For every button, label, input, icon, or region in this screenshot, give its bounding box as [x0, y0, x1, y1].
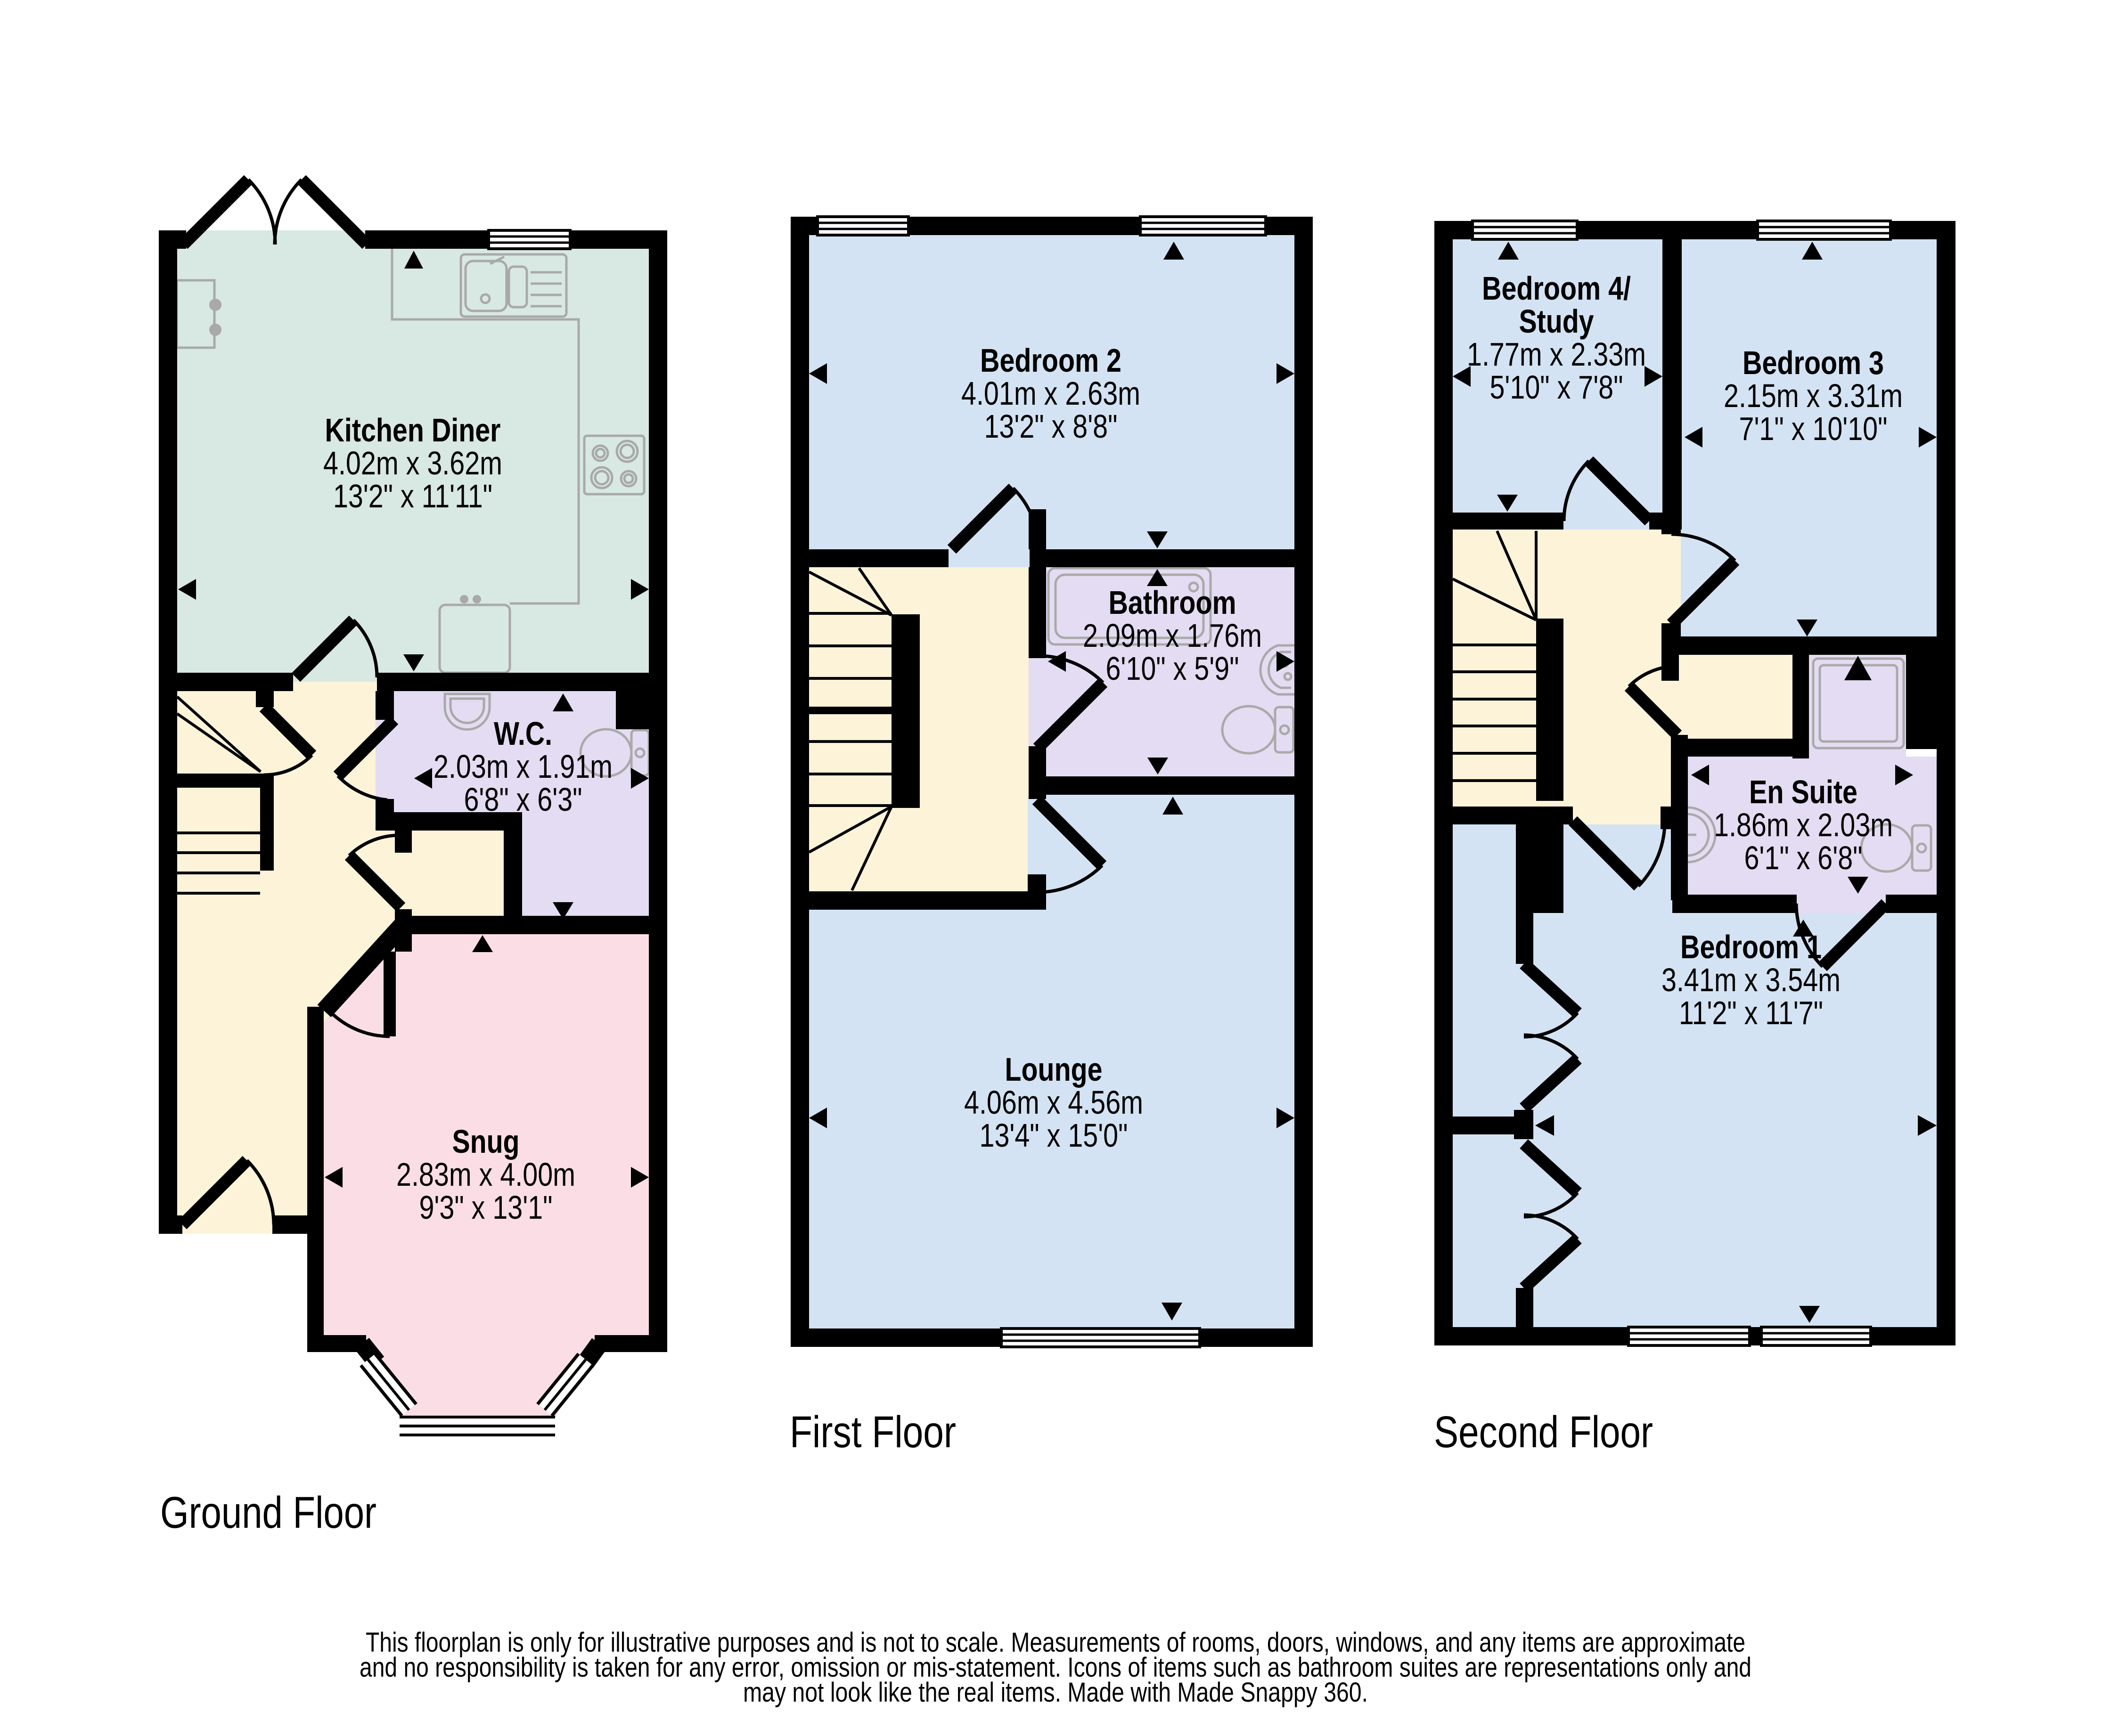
- svg-text:4.01m x 2.63m: 4.01m x 2.63m: [961, 375, 1140, 412]
- svg-text:2.09m x 1.76m: 2.09m x 1.76m: [1083, 617, 1262, 654]
- svg-text:Snug: Snug: [452, 1123, 520, 1160]
- svg-text:Bedroom 1: Bedroom 1: [1680, 929, 1822, 965]
- svg-text:Kitchen Diner: Kitchen Diner: [325, 412, 501, 448]
- svg-text:Bedroom 4/: Bedroom 4/: [1482, 270, 1631, 307]
- svg-text:Second Floor: Second Floor: [1434, 1407, 1653, 1457]
- svg-text:2.03m x 1.91m: 2.03m x 1.91m: [434, 748, 613, 785]
- svg-text:2.83m x 4.00m: 2.83m x 4.00m: [396, 1156, 575, 1193]
- svg-text:Bedroom 2: Bedroom 2: [980, 342, 1121, 379]
- svg-text:3.41m x 3.54m: 3.41m x 3.54m: [1661, 962, 1841, 998]
- svg-text:Bathroom: Bathroom: [1109, 584, 1236, 621]
- svg-text:4.06m x 4.56m: 4.06m x 4.56m: [964, 1084, 1143, 1121]
- svg-text:2.15m x 3.31m: 2.15m x 3.31m: [1724, 377, 1903, 414]
- svg-text:11'2" x 11'7": 11'2" x 11'7": [1679, 994, 1823, 1031]
- svg-text:5'10" x 7'8": 5'10" x 7'8": [1490, 369, 1623, 406]
- svg-text:6'8" x 6'3": 6'8" x 6'3": [464, 781, 582, 818]
- svg-text:1.86m x 2.03m: 1.86m x 2.03m: [1714, 807, 1893, 843]
- svg-text:W.C.: W.C.: [494, 715, 552, 752]
- svg-text:13'4" x 15'0": 13'4" x 15'0": [980, 1117, 1128, 1154]
- svg-text:13'2" x 11'11": 13'2" x 11'11": [333, 478, 492, 514]
- svg-text:may not look like the real ite: may not look like the real items. Made w…: [743, 1677, 1368, 1708]
- svg-text:Study: Study: [1519, 303, 1594, 340]
- svg-text:6'1" x 6'8": 6'1" x 6'8": [1744, 839, 1863, 876]
- svg-text:Bedroom 3: Bedroom 3: [1743, 344, 1884, 381]
- svg-text:4.02m x 3.62m: 4.02m x 3.62m: [323, 445, 502, 481]
- svg-text:Ground Floor: Ground Floor: [160, 1488, 376, 1538]
- svg-text:7'1" x 10'10": 7'1" x 10'10": [1739, 410, 1888, 447]
- svg-text:9'3" x 13'1": 9'3" x 13'1": [419, 1189, 553, 1226]
- svg-text:En Suite: En Suite: [1749, 774, 1857, 810]
- svg-text:13'2" x 8'8": 13'2" x 8'8": [984, 408, 1118, 445]
- svg-text:Lounge: Lounge: [1005, 1051, 1103, 1088]
- svg-text:6'10" x 5'9": 6'10" x 5'9": [1106, 650, 1239, 687]
- svg-text:First Floor: First Floor: [790, 1407, 956, 1457]
- svg-text:1.77m x 2.33m: 1.77m x 2.33m: [1467, 336, 1646, 373]
